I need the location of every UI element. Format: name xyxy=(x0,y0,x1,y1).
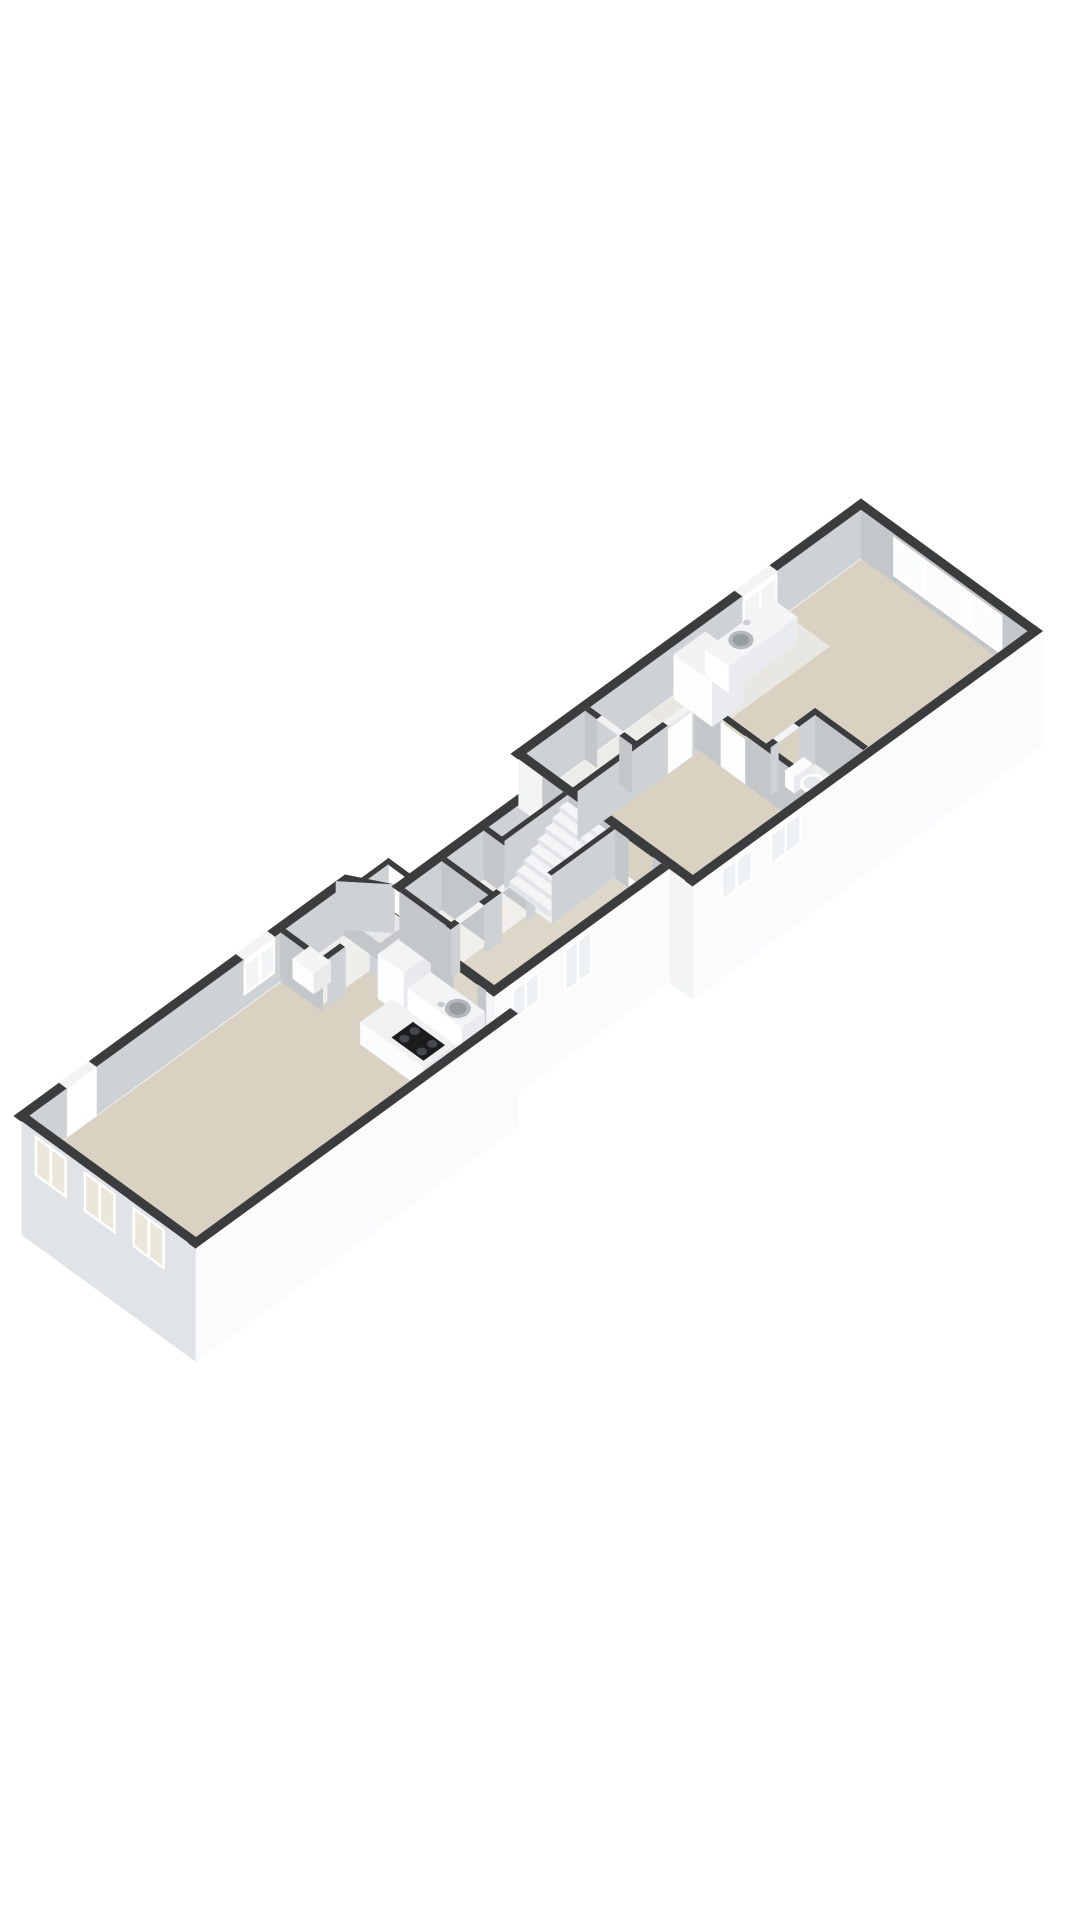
wall-face xyxy=(620,736,632,793)
kitchen-faucet xyxy=(438,1002,445,1007)
window-ne-large-mullion xyxy=(968,594,970,629)
window-sw-2-mullion xyxy=(99,1185,101,1221)
burner xyxy=(417,1048,427,1055)
window-sw-1-mullion xyxy=(50,1149,52,1185)
wall-face xyxy=(451,923,460,977)
wall-face xyxy=(585,711,597,767)
bathroom-faucet xyxy=(743,620,750,625)
burner xyxy=(410,1028,420,1035)
isometric-floor-plan xyxy=(14,499,1043,1362)
window-sw-3-mullion xyxy=(148,1220,150,1256)
window-ne-large-mullion xyxy=(924,562,926,597)
window-bedroom-2-mullion xyxy=(785,825,787,853)
window-bedroom-1-mullion xyxy=(736,861,738,889)
floor-plan-page xyxy=(0,0,1080,1920)
glass-door-connector-mullion xyxy=(577,942,579,982)
floor-plan-canvas xyxy=(0,0,1080,1920)
circle xyxy=(449,1002,466,1014)
window-nw-living-mullion xyxy=(259,954,261,982)
burner xyxy=(427,1040,437,1047)
wall-face xyxy=(771,742,778,795)
burner xyxy=(399,1035,409,1042)
window-connector-mullion xyxy=(525,982,527,1010)
wall-face xyxy=(615,830,628,888)
circle xyxy=(733,634,749,646)
diagonal-wall-face xyxy=(336,881,395,932)
